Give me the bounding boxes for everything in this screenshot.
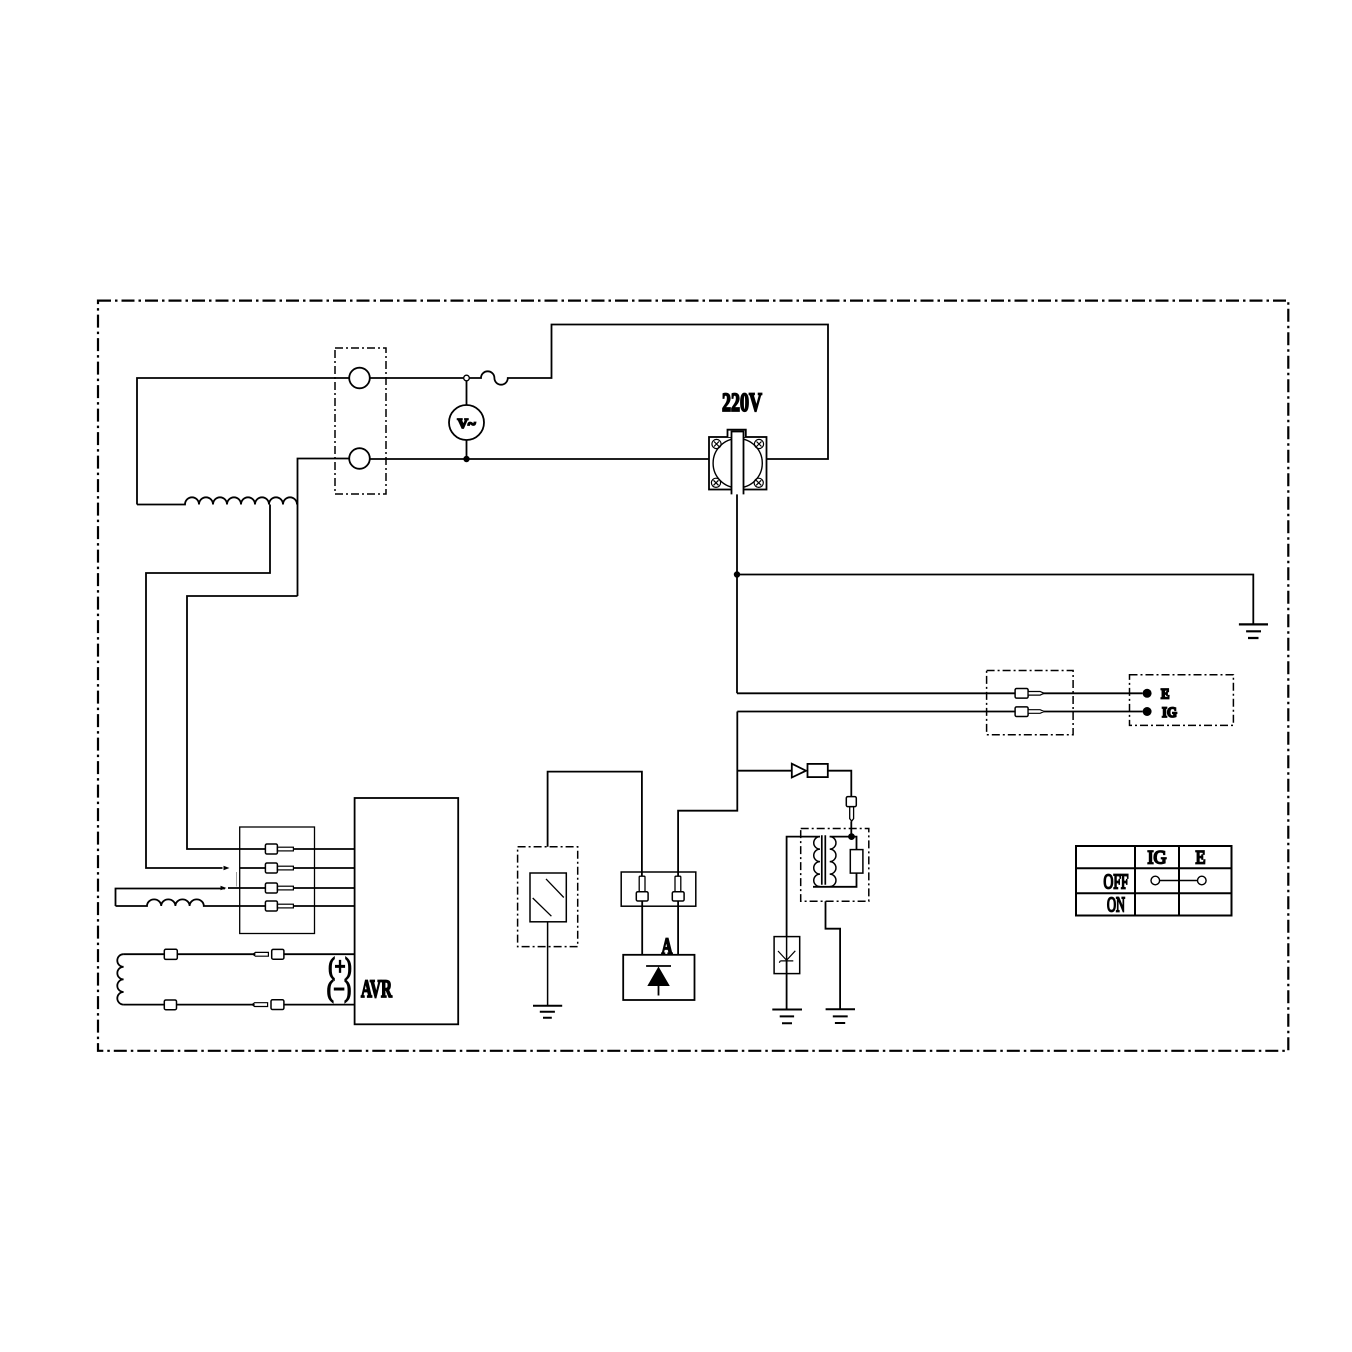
svg-text:(−): (−): [327, 977, 351, 1003]
svg-text:E: E: [1161, 687, 1170, 703]
svg-text:IG: IG: [1162, 705, 1177, 721]
svg-text:220V: 220V: [722, 388, 762, 417]
svg-text:OFF: OFF: [1104, 870, 1129, 894]
svg-text:IG: IG: [1148, 848, 1167, 869]
svg-text:ON: ON: [1107, 893, 1125, 917]
svg-text:AVR: AVR: [361, 976, 393, 1003]
svg-text:E: E: [1196, 848, 1206, 869]
svg-text:V~: V~: [458, 417, 477, 432]
